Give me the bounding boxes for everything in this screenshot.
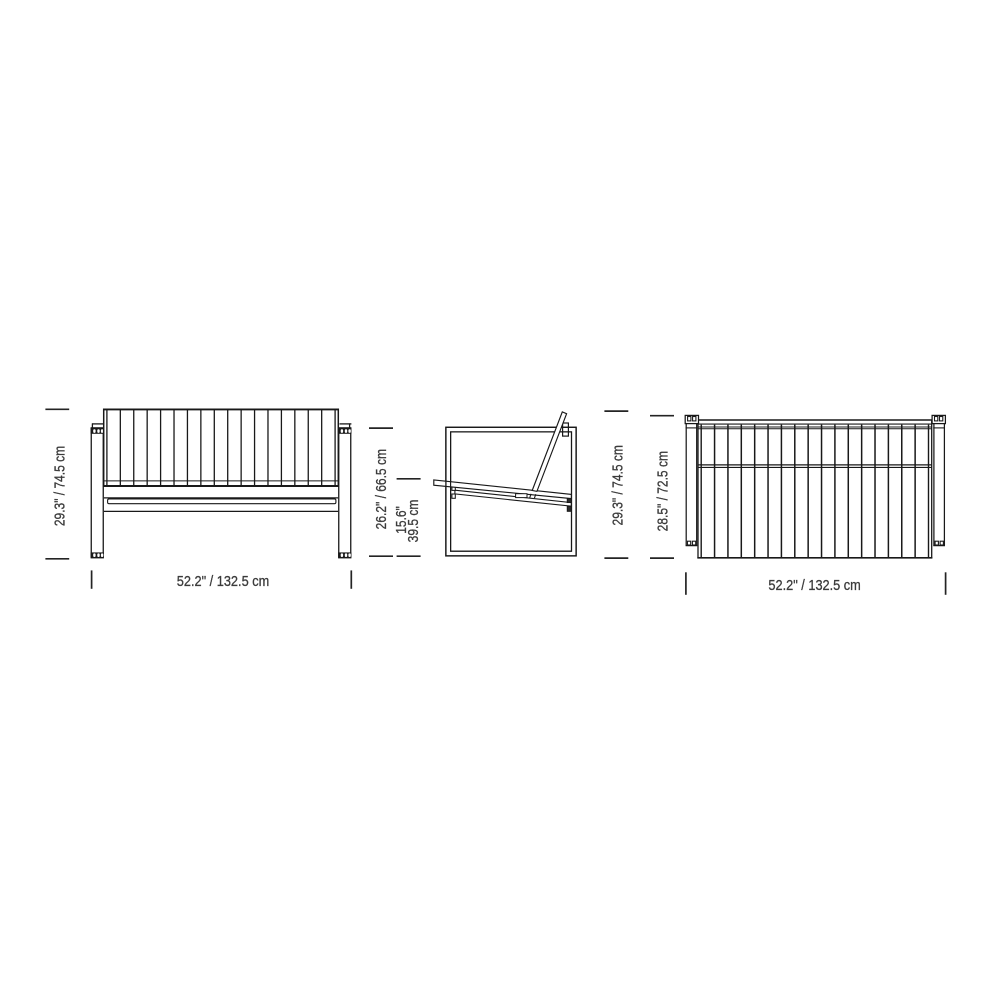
- svg-text:28.5" / 72.5 cm: 28.5" / 72.5 cm: [654, 451, 671, 531]
- svg-text:52.2" / 132.5 cm: 52.2" / 132.5 cm: [177, 573, 269, 589]
- svg-text:39.5 cm: 39.5 cm: [405, 500, 422, 543]
- svg-text:29.3" / 74.5 cm: 29.3" / 74.5 cm: [51, 446, 68, 526]
- svg-text:52.2" / 132.5 cm: 52.2" / 132.5 cm: [768, 577, 860, 593]
- svg-text:26.2" / 66.5 cm: 26.2" / 66.5 cm: [373, 449, 390, 529]
- svg-text:29.3" / 74.5 cm: 29.3" / 74.5 cm: [609, 445, 626, 525]
